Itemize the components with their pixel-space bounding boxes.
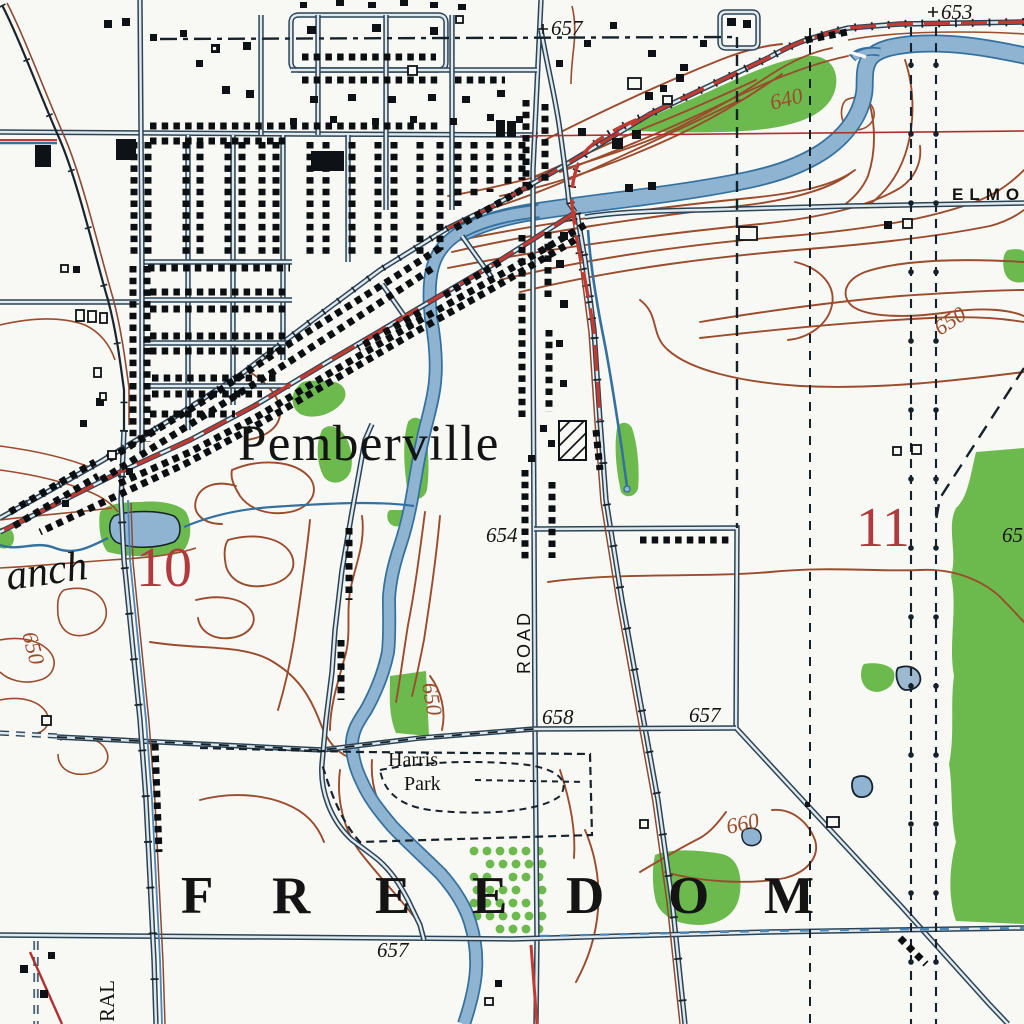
svg-text:653: 653 xyxy=(941,0,973,24)
svg-text:657: 657 xyxy=(377,938,410,962)
svg-text:658: 658 xyxy=(542,705,574,729)
svg-text:ROAD: ROAD xyxy=(514,610,534,674)
svg-text:E: E xyxy=(375,867,410,925)
svg-text:ELMOR: ELMOR xyxy=(952,185,1024,204)
svg-text:654: 654 xyxy=(486,523,518,547)
svg-text:F: F xyxy=(181,867,213,925)
svg-text:10: 10 xyxy=(136,537,192,599)
svg-text:65: 65 xyxy=(1002,523,1023,547)
svg-text:RAL: RAL xyxy=(95,980,119,1022)
svg-text:Park: Park xyxy=(404,773,441,795)
svg-text:M: M xyxy=(764,867,814,925)
svg-text:657: 657 xyxy=(689,703,722,727)
svg-text:E: E xyxy=(472,867,507,925)
svg-text:O: O xyxy=(668,867,709,925)
svg-text:Harris: Harris xyxy=(388,749,438,771)
svg-text:657: 657 xyxy=(551,16,584,40)
svg-text:Pemberville: Pemberville xyxy=(238,416,500,472)
svg-text:11: 11 xyxy=(856,497,910,559)
svg-text:R: R xyxy=(272,867,311,925)
svg-text:D: D xyxy=(566,867,604,925)
